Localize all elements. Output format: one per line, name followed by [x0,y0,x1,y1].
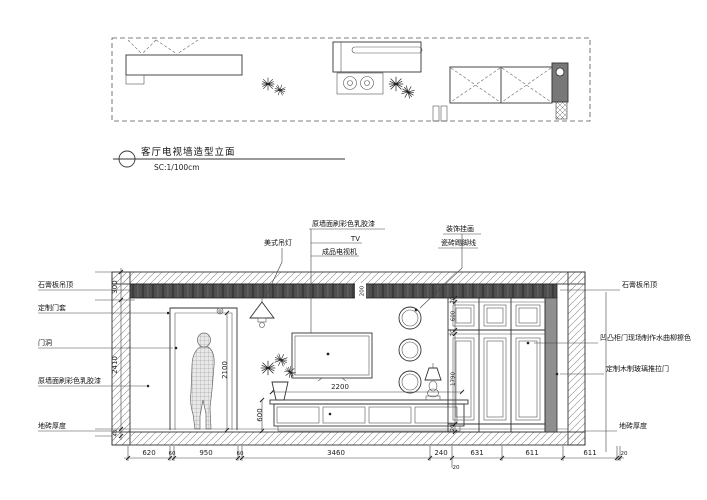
plan-sofa-arm [126,75,144,84]
plan-sofa [126,55,242,75]
dim-cab-600: 600 [451,310,457,321]
callout-sliding-door: 定制木制玻璃推拉门 [606,364,669,373]
ceiling-trim-band [130,284,557,298]
callout-skirting: 瓷砖踢脚线 [441,238,476,247]
dim-600: 600 [256,408,264,421]
callout-right-ceiling: 石膏板吊顶 [622,280,657,289]
table-lamp-icon [425,363,441,400]
plan-boundary [112,38,590,121]
dim-200: 200 [360,285,366,296]
dim-60b: 60 [237,451,244,457]
dim-2200: 2200 [331,383,349,391]
dim-240: 240 [434,449,447,457]
person-head [198,333,211,347]
callout-labels: 美式吊灯 原墙面刷彩色乳胶漆 TV 成品电视机 装饰挂画 瓷砖踢脚线 石膏板吊顶… [38,219,691,452]
drawing-canvas: 客厅电视墙造型立面 SC:1/100cm [0,0,707,500]
cad-elevation-sheet: 客厅电视墙造型立面 SC:1/100cm [0,0,707,500]
wall-decor-circles [399,307,421,393]
title-block: 客厅电视墙造型立面 SC:1/100cm [113,146,345,172]
callout-art: 装饰挂画 [446,224,474,233]
callout-pendant: 美式吊灯 [264,238,292,247]
floor-slab [112,432,585,445]
dim-611b: 611 [583,449,596,457]
plan-sofa-vmarks [128,40,198,54]
dim-300: 300 [111,280,119,293]
dim-950: 950 [199,449,212,457]
dim-cab-1790: 1790 [451,372,457,386]
dim-2410: 2410 [111,356,119,374]
dim-60a: 60 [169,451,176,457]
dim-20end: 20 [621,451,628,457]
tv [292,333,372,381]
callout-tv: TV [350,235,360,243]
dim-cab-20b: 20 [450,329,456,336]
plan-door-jamb [441,106,447,121]
plan-cooktop [337,73,383,94]
callout-door-frame: 定制门套 [38,303,66,312]
dim-611a: 611 [525,449,538,457]
dim-20sub: 20 [453,465,460,471]
drawing-title: 客厅电视墙造型立面 [141,146,236,158]
elevation-view [112,272,585,445]
plan-shelf [352,47,422,53]
right-wall [568,272,585,445]
dim-cab-20a: 20 [450,296,456,303]
dim-3460: 3460 [327,449,345,457]
plan-plant-icon [262,78,288,98]
plan-wall-hatch [556,102,567,119]
callout-tv-set: 成品电视机 [322,247,357,256]
plan-door-jamb [433,106,439,121]
dim-620: 620 [142,449,155,457]
plan-counter [333,42,421,72]
callout-tile-right: 地砖厚度 [619,421,647,430]
callout-tile-left: 地砖厚度 [38,421,66,430]
callout-wall-paint-top: 原墙面刷彩色乳胶漆 [312,219,375,228]
plan-plant-icon [389,77,417,101]
drawing-scale: SC:1/100cm [154,163,200,172]
dim-cab-20c: 20 [450,424,456,431]
callout-wall-paint-left: 原墙面刷彩色乳胶漆 [38,376,101,385]
plan-view [112,38,590,121]
tv-cabinet [270,400,468,431]
person-figure [191,347,215,429]
callout-left-ceiling: 石膏板吊顶 [38,280,73,289]
callout-cabinet-door: 凹凸柜门现场制作水曲柳擦色 [600,333,691,342]
dim-631: 631 [470,449,483,457]
dim-40: 40 [113,429,119,436]
dim-2100: 2100 [221,361,229,379]
cabinet-side-panel [545,298,557,432]
ceiling-slab [112,272,585,284]
callout-door-opening: 门洞 [38,338,52,347]
